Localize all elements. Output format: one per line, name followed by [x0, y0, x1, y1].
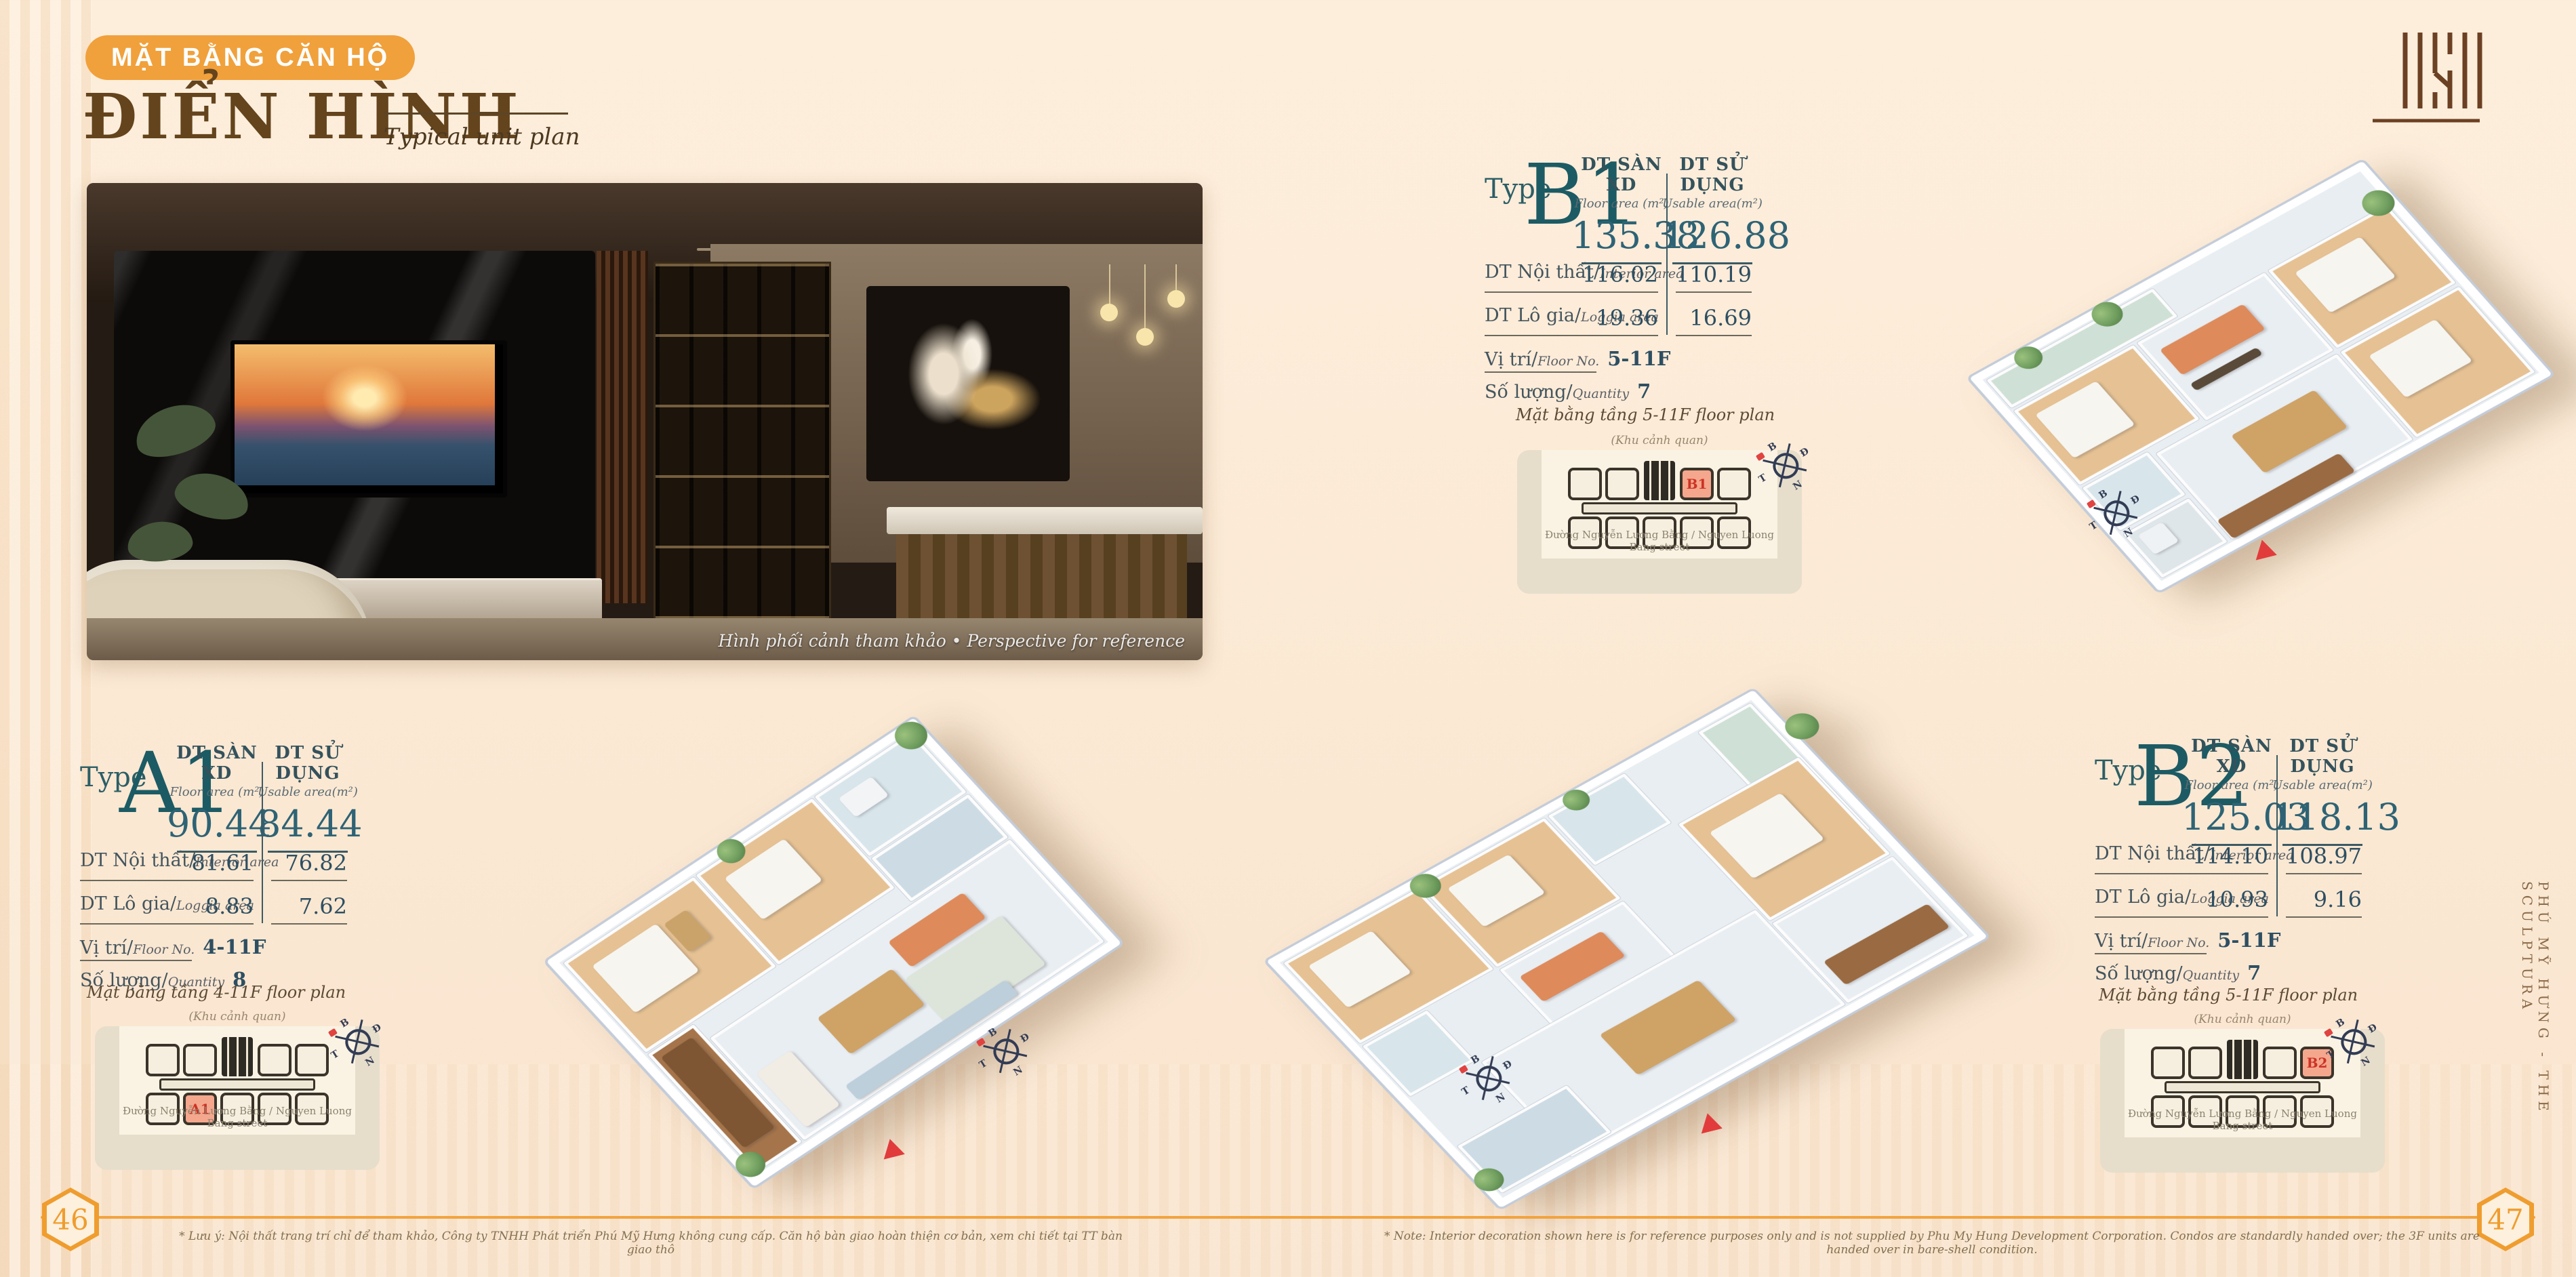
sculptura-logo-icon — [2366, 12, 2508, 127]
usable-area-header: DT SỬ DỤNG — [1662, 155, 1763, 195]
keyplan-street-label: Đường Nguyễn Lương Bằng / Nguyen Luong B… — [1542, 529, 1777, 553]
unit-a1-floor-area-value: 90.44 — [167, 806, 267, 843]
position-sublabel: Floor No. — [133, 942, 195, 957]
unit-b2-interior-usable: 108.97 — [2286, 843, 2362, 869]
usable-area-header: DT SỬ DỤNG — [2272, 736, 2373, 777]
keyplan-top-label: (Khu cảnh quan) — [1517, 434, 1802, 447]
keyplan-unit-cell — [2151, 1047, 2185, 1079]
unit-a1-interior-usable: 76.82 — [271, 850, 347, 876]
floor-area-header: DT SÀN XD — [2181, 736, 2282, 777]
brochure-page: MẶT BẰNG CĂN HỘ ĐIỂN HÌNH Typical unit p… — [0, 0, 2576, 1277]
usable-area-subheader: Usable area(m²) — [1662, 197, 1763, 211]
usable-area-header: DT SỬ DỤNG — [258, 743, 358, 784]
position-label: Vị trí/ — [1485, 349, 1537, 370]
unit-a1-3d-floorplan — [522, 691, 1146, 1213]
unit-a1-loggia-usable: 7.62 — [271, 893, 347, 919]
row-divider — [1485, 371, 1596, 373]
quantity-sublabel: Quantity — [1573, 386, 1629, 401]
quantity-row: Số lượng/Quantity7 — [2095, 961, 2261, 984]
keyplan-street-label: Đường Nguyễn Lương Bằng / Nguyen Luong B… — [119, 1105, 355, 1129]
keyplan-corridor — [159, 1078, 315, 1091]
position-sublabel: Floor No. — [1537, 354, 1599, 369]
compass-letter: Đ — [371, 1022, 384, 1036]
row-divider — [2095, 873, 2268, 874]
keyplan-core — [222, 1037, 253, 1076]
row-divider — [2095, 916, 2268, 918]
interior-perspective-image: Hình phối cảnh tham khảo • Perspective f… — [87, 183, 1203, 660]
row-divider — [80, 960, 192, 961]
unit-b1-loggia-floor: 19.36 — [1566, 305, 1658, 331]
footer-note-vietnamese: * Lưu ý: Nội thất trang trí chỉ để tham … — [176, 1230, 1125, 1257]
row-divider — [2095, 953, 2207, 954]
footer-note-english: * Note: Interior decoration shown here i… — [1383, 1230, 2481, 1257]
floor-area-subheader: Floor area (m²) — [1571, 197, 1672, 211]
row-divider — [2286, 873, 2362, 874]
compass-letter: B — [2097, 488, 2110, 502]
unit-a1-usable-area-value: 84.44 — [258, 806, 358, 843]
floor-area-subheader: Floor area (m²) — [2181, 778, 2282, 792]
title-divider — [384, 113, 568, 115]
unit-b2-loggia-floor: 10.93 — [2176, 887, 2268, 912]
unit-b1-interior-floor: 116.02 — [1566, 262, 1658, 287]
position-sublabel: Floor No. — [2148, 935, 2209, 950]
floor-area-header: DT SÀN XD — [167, 743, 267, 784]
compass-letter: B — [1469, 1053, 1482, 1067]
keyplan-corridor — [1582, 502, 1737, 514]
keyplan-unit-cell — [1568, 468, 1602, 500]
row-divider — [1485, 335, 1658, 336]
position-label: Vị trí/ — [80, 937, 133, 958]
row-divider — [2286, 916, 2362, 918]
column-divider — [262, 762, 263, 923]
quantity-row: Số lượng/Quantity7 — [1485, 380, 1651, 403]
keyplan-corridor — [2165, 1081, 2320, 1093]
row-divider — [1485, 291, 1658, 293]
row-divider — [80, 880, 254, 881]
keyplan-core — [1644, 461, 1675, 500]
photo-pendant-light — [1100, 304, 1118, 321]
quantity-sublabel: Quantity — [2183, 968, 2239, 983]
position-row: Vị trí/Floor No.4-11F — [80, 935, 266, 958]
keyplan-highlighted-unit-b1: B1 — [1680, 468, 1714, 500]
keyplan-site: B1 Đường Nguyễn Lương Bằng / Nguyen Luon… — [1517, 450, 1802, 594]
plant-icon — [1778, 708, 1826, 745]
row-divider — [271, 880, 347, 881]
side-project-name: PHÚ MỸ HƯNG - THE SCULPTURA — [2519, 881, 2552, 1220]
unit-b2-floor-area-value: 125.03 — [2181, 799, 2282, 836]
isometric-floorplan — [1266, 690, 1988, 1208]
keyplan-unit-cell — [2188, 1047, 2222, 1079]
photo-pendant-stem — [1144, 264, 1146, 329]
keyplan-unit-cell — [1717, 468, 1751, 500]
keyplan-unit-cell — [1605, 468, 1639, 500]
usable-area-subheader: Usable area(m²) — [258, 785, 358, 799]
unit-b1-interior-usable: 110.19 — [1676, 262, 1752, 287]
floor-area-column: DT SÀN XD Floor area (m²) 125.03 — [2181, 736, 2282, 846]
quantity-label: Số lượng/ — [1485, 382, 1573, 403]
unit-b2-keyplan-title: Mặt bằng tầng 5-11F floor plan — [2099, 986, 2358, 1005]
unit-a1-keyplan-title: Mặt bằng tầng 4-11F floor plan — [87, 983, 346, 1002]
unit-b1-loggia-usable: 16.69 — [1676, 305, 1752, 331]
unit-b2-spec-table: Type B2 DT SÀN XD Floor area (m²) 125.03… — [2095, 736, 2413, 988]
floor-area-column: DT SÀN XD Floor area (m²) 135.38 — [1571, 155, 1672, 264]
position-row: Vị trí/Floor No.5-11F — [2095, 929, 2280, 952]
row-divider — [271, 923, 347, 925]
keyplan-top-label: (Khu cảnh quan) — [95, 1010, 380, 1023]
position-label: Vị trí/ — [2095, 931, 2148, 952]
usable-area-column: DT SỬ DỤNG Usable area(m²) 118.13 — [2272, 736, 2373, 846]
row-divider — [1676, 335, 1752, 336]
footer-rule — [41, 1216, 2535, 1219]
row-divider — [80, 923, 254, 925]
column-divider — [1666, 174, 1668, 335]
unit-b2-loggia-usable: 9.16 — [2286, 887, 2362, 912]
unit-b2-quantity: 7 — [2247, 961, 2261, 984]
unit-b1-usable-area-value: 126.88 — [1662, 218, 1763, 254]
keyplan-unit-cell — [183, 1044, 217, 1076]
unit-a1-loggia-floor: 8.83 — [161, 893, 254, 919]
photo-pendant-stem — [1109, 264, 1110, 305]
unit-b1-spec-table: Type B1 DT SÀN XD Floor area (m²) 135.38… — [1485, 155, 1803, 407]
keyplan-street-label: Đường Nguyễn Lương Bằng / Nguyen Luong B… — [2125, 1108, 2360, 1132]
photo-display-cabinet — [653, 262, 831, 621]
unit-b1-keyplan-title: Mặt bằng tầng 5-11F floor plan — [1516, 405, 1775, 424]
keyplan-unit-cell — [2263, 1047, 2297, 1079]
unit-b2-usable-area-value: 118.13 — [2272, 799, 2373, 836]
compass-letter: B — [1766, 441, 1779, 454]
isometric-floorplan — [546, 718, 1122, 1187]
keyplan-unit-cell — [146, 1044, 180, 1076]
page-subtitle: Typical unit plan — [384, 123, 580, 150]
usable-area-column: DT SỬ DỤNG Usable area(m²) 84.44 — [258, 743, 358, 853]
unit-a1-spec-table: Type A1 DT SÀN XD Floor area (m²) 90.44 … — [80, 743, 399, 995]
keyplan-unit-cell — [295, 1044, 329, 1076]
unit-a1-interior-floor: 81.61 — [161, 850, 254, 876]
photo-pendant-light — [1167, 290, 1185, 308]
unit-a1-floors: 4-11F — [203, 935, 266, 958]
floor-area-header: DT SÀN XD — [1571, 155, 1672, 195]
column-divider — [2276, 755, 2278, 916]
isometric-floorplan — [1969, 161, 2552, 591]
floor-area-subheader: Floor area (m²) — [167, 785, 267, 799]
photo-caption: Hình phối cảnh tham khảo • Perspective f… — [718, 631, 1185, 651]
section-badge: MẶT BẰNG CĂN HỘ — [85, 35, 415, 80]
quantity-label: Số lượng/ — [2095, 963, 2183, 984]
compass-letter: Đ — [1798, 446, 1811, 460]
floor-area-column: DT SÀN XD Floor area (m²) 90.44 — [167, 743, 267, 853]
photo-artwork — [866, 286, 1070, 481]
unit-b1-floors: 5-11F — [1607, 347, 1670, 370]
photo-tv-sunset-screen — [235, 344, 495, 485]
unit-b2-floors: 5-11F — [2217, 929, 2280, 952]
photo-pendant-stem — [1175, 264, 1177, 291]
compass-letter: B — [338, 1017, 351, 1030]
row-divider — [1676, 291, 1752, 293]
unit-b1-quantity: 7 — [1637, 380, 1651, 403]
usable-area-subheader: Usable area(m²) — [2272, 778, 2373, 792]
compass-letter: B — [2334, 1017, 2347, 1030]
unit-b1-floor-area-value: 135.38 — [1571, 218, 1672, 254]
position-row: Vị trí/Floor No.5-11F — [1485, 347, 1670, 370]
unit-b2-3d-floorplan — [1220, 678, 2034, 1220]
keyplan-core — [2227, 1040, 2258, 1079]
photo-wood-slats — [597, 251, 648, 603]
keyplan-unit-cell — [258, 1044, 291, 1076]
usable-area-column: DT SỬ DỤNG Usable area(m²) 126.88 — [1662, 155, 1763, 264]
unit-b2-interior-floor: 114.10 — [2176, 843, 2268, 869]
photo-pendant-light — [1136, 328, 1154, 346]
compass-letter: B — [986, 1026, 999, 1040]
